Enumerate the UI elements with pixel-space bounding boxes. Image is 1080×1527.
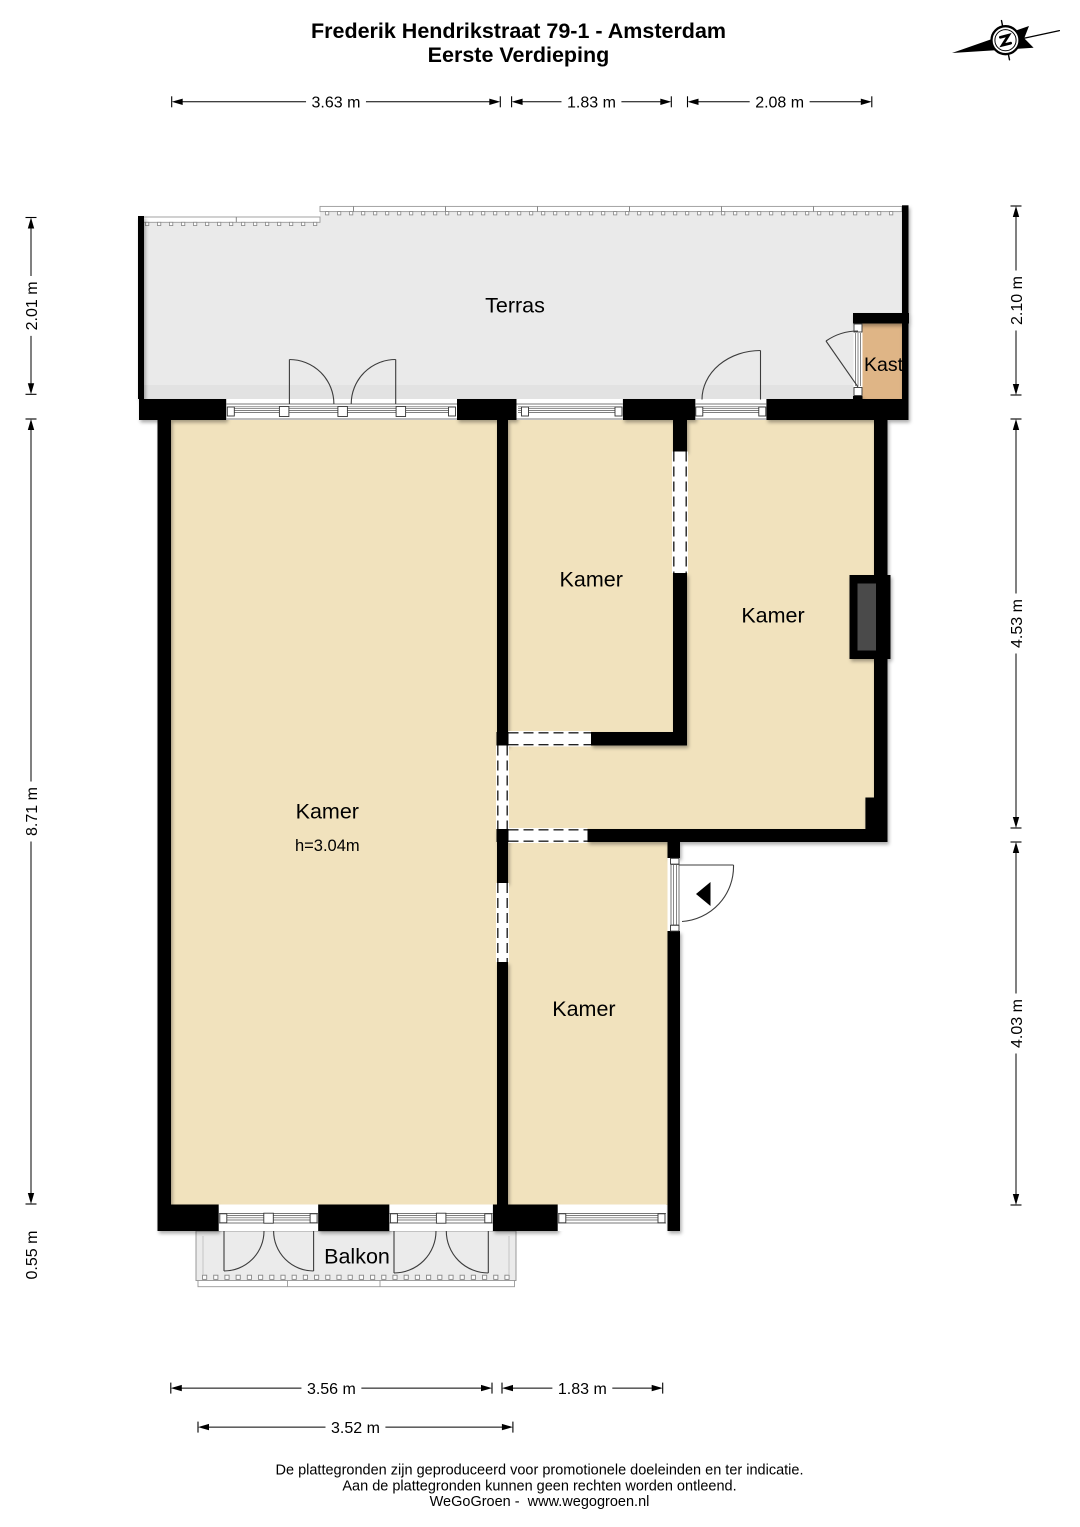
svg-text:Terras: Terras — [485, 294, 545, 318]
svg-text:8.71 m: 8.71 m — [24, 787, 41, 836]
svg-text:3.63 m: 3.63 m — [312, 95, 361, 112]
svg-text:WeGoGroen - www.wegogroen.nl: WeGoGroen - www.wegogroen.nl — [430, 1494, 650, 1510]
svg-text:De plattegronden zijn geproduc: De plattegronden zijn geproduceerd voor … — [276, 1463, 804, 1479]
svg-text:2.10 m: 2.10 m — [1009, 276, 1026, 325]
svg-text:2.08 m: 2.08 m — [755, 95, 804, 112]
svg-text:Kast: Kast — [864, 354, 904, 376]
svg-text:Frederik Hendrikstraat 79-1 -: Frederik Hendrikstraat 79-1 - Amsterdam — [311, 19, 726, 43]
svg-text:4.03 m: 4.03 m — [1009, 999, 1026, 1048]
svg-text:Kamer: Kamer — [552, 997, 615, 1021]
svg-text:3.52 m: 3.52 m — [331, 1420, 380, 1437]
svg-text:Aan de plattegronden kunnen ge: Aan de plattegronden kunnen geen rechten… — [342, 1478, 736, 1494]
svg-text:1.83 m: 1.83 m — [558, 1381, 607, 1398]
svg-text:1.83 m: 1.83 m — [567, 95, 616, 112]
svg-text:Kamer: Kamer — [296, 799, 359, 823]
svg-text:Eerste Verdieping: Eerste Verdieping — [428, 43, 610, 67]
svg-text:4.53 m: 4.53 m — [1009, 599, 1026, 648]
svg-text:Kamer: Kamer — [560, 567, 623, 591]
svg-text:Kamer: Kamer — [741, 603, 804, 627]
svg-text:Balkon: Balkon — [324, 1245, 390, 1269]
svg-text:3.56 m: 3.56 m — [307, 1381, 356, 1398]
svg-text:2.01 m: 2.01 m — [24, 281, 41, 330]
svg-text:h=3.04m: h=3.04m — [295, 837, 360, 855]
svg-text:0.55 m: 0.55 m — [24, 1231, 41, 1280]
